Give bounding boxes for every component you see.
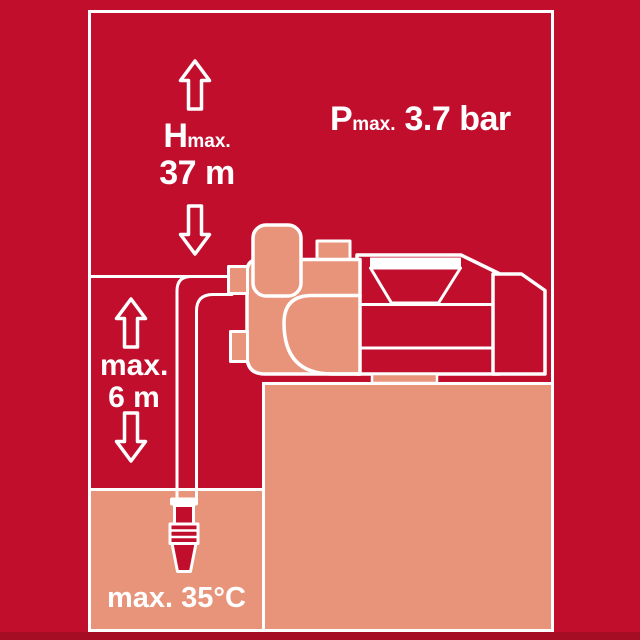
head-arrow-up-icon: [181, 61, 210, 109]
pump-line-art: [0, 0, 640, 640]
pump-tank-cap: [253, 225, 301, 296]
foot-valve-icon: [170, 498, 198, 572]
motor-body: [357, 255, 499, 374]
suction-arrow-down-icon: [117, 413, 146, 461]
head-arrow-down-icon: [181, 206, 210, 254]
head-subscript: max.: [187, 131, 230, 152]
strainer-tip: [172, 544, 196, 572]
suction-arrow-up-icon: [117, 299, 146, 347]
pump-foot: [372, 374, 437, 383]
strainer-neck: [175, 506, 194, 525]
pressure-subscript: max.: [352, 114, 395, 135]
pressure-max-label: Pmax.3.7 bar: [330, 101, 511, 137]
head-max-value: 37 m: [130, 155, 264, 191]
infographic-canvas: Hmax. 37 m Pmax.3.7 bar max. 6 m max. 35…: [0, 0, 640, 640]
motor-vent-band: [370, 258, 461, 269]
suction-max-value: 6 m: [100, 382, 168, 414]
head-symbol: H: [163, 117, 187, 155]
fan-end-cap: [493, 274, 545, 374]
water-temp-label: max. 35°C: [91, 583, 262, 614]
pressure-symbol: P: [330, 100, 352, 138]
pipe-inner-edge: [197, 295, 233, 501]
head-max-label: Hmax.: [130, 118, 264, 154]
ground-strip: [0, 632, 640, 640]
strainer-ribs: [170, 524, 198, 544]
pipe-outer-edge: [177, 277, 191, 501]
suction-max-label: max.: [100, 350, 168, 382]
pressure-value: 3.7 bar: [405, 100, 511, 138]
suction-port: [229, 267, 248, 294]
drain-port: [231, 332, 248, 362]
pump-icon: [229, 225, 546, 383]
